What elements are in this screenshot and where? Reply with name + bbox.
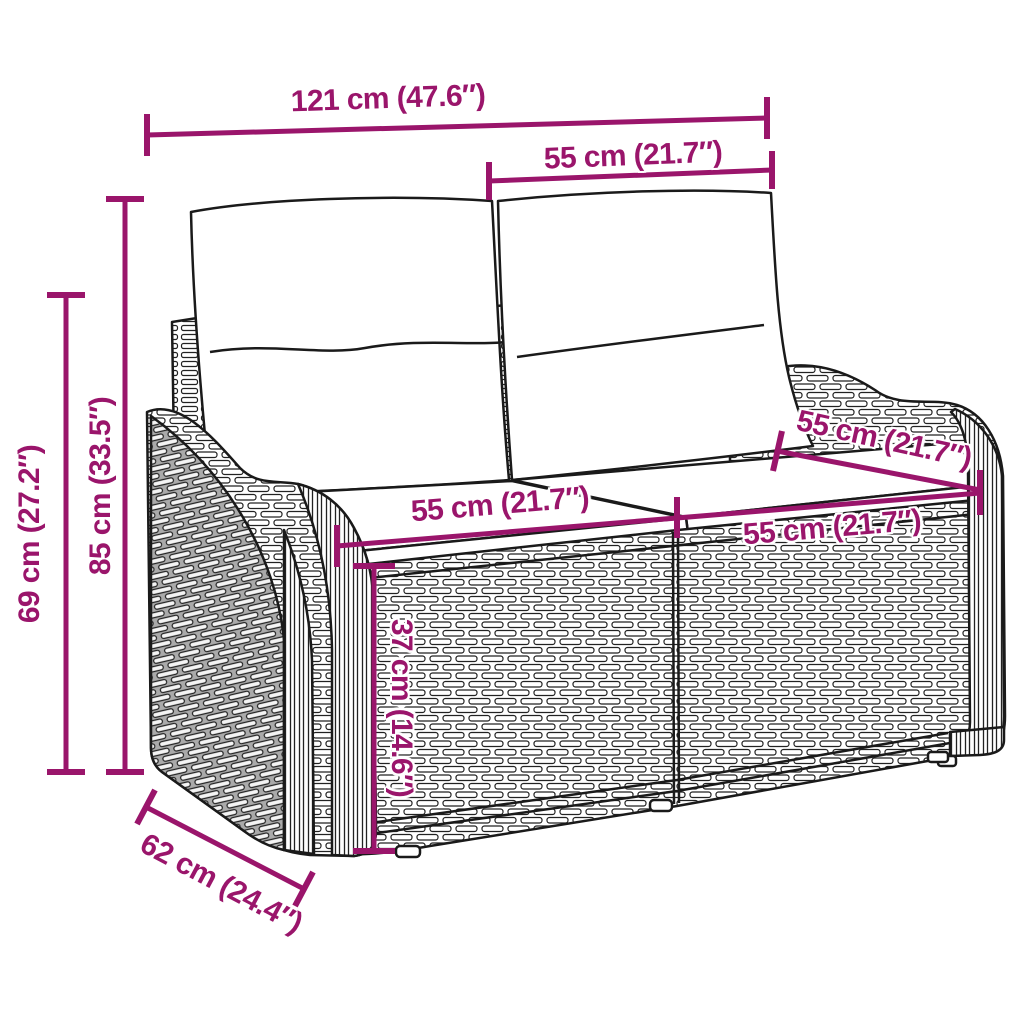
- dim-label-backrest-section-width: 55 cm (21.7″): [543, 135, 723, 176]
- dim-label-total-width: 121 cm (47.6″): [290, 79, 486, 120]
- dim-label-total-height: 85 cm (33.5″): [84, 397, 118, 575]
- foot-front-right: [928, 752, 948, 762]
- dimension-diagram: 121 cm (47.6″) 55 cm (21.7″) 85 cm (33.5…: [0, 0, 1024, 1024]
- foot-front-center: [650, 800, 672, 811]
- dim-line-total-width: [147, 118, 767, 135]
- back-cushion-right: [498, 191, 813, 480]
- armrest-right-foot: [950, 727, 1004, 756]
- dim-label-seat-height: 37 cm (14.6″): [384, 619, 418, 797]
- foot-front-left: [396, 846, 420, 857]
- back-cushion-left: [191, 198, 509, 496]
- dim-label-side-height: 69 cm (27.2″): [13, 445, 47, 623]
